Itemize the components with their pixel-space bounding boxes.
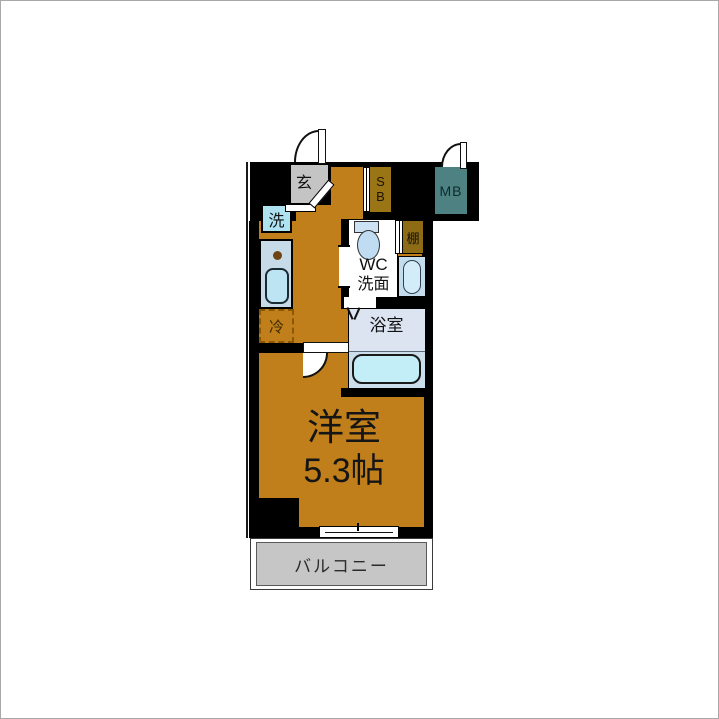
shoebox-label-s: S <box>376 175 385 190</box>
shoebox-label-b: B <box>376 190 385 205</box>
entrance-label: 玄 <box>296 169 312 193</box>
main-room-label: 洋室 5.3帖 <box>263 405 425 493</box>
exterior-face-line <box>246 162 248 538</box>
wall-hall-room <box>249 343 303 353</box>
room-door-leaf-icon <box>303 342 349 353</box>
main-room-size: 5.3帖 <box>303 451 384 492</box>
wall-right-mid <box>425 309 433 397</box>
washbasin-bowl <box>403 260 421 294</box>
bathtub <box>352 354 421 384</box>
meter-box-door-arc-icon <box>441 143 461 167</box>
shoebox: S B <box>370 167 391 212</box>
entrance-door-leaf-icon <box>318 129 326 164</box>
toilet-door-jamb-bottom <box>338 286 350 288</box>
toilet-room-label-senmen: 洗面 <box>345 273 402 291</box>
wall-left <box>249 221 259 538</box>
shelf-box: 棚 <box>402 220 424 254</box>
refrigerator-space: 冷 <box>259 309 294 343</box>
bathroom-folding-door-icon <box>346 307 360 321</box>
main-room-name: 洋室 <box>303 406 384 450</box>
toilet-door-jamb-top <box>338 245 350 247</box>
floor-plan: WC 洗面 棚 浴室 洗 冷 玄 S B MB <box>0 0 719 719</box>
meter-box: MB <box>435 167 467 214</box>
shoebox-sliding-door <box>363 167 370 212</box>
wall-right-upper <box>425 219 433 309</box>
wall-bottom-left-block <box>257 498 299 529</box>
entrance-door-arc-icon <box>294 130 319 162</box>
wall-right-lower <box>424 396 433 538</box>
balcony-panel: バルコニー <box>256 542 427 586</box>
balcony-window-tick <box>357 523 359 531</box>
kitchen-sink <box>265 268 289 304</box>
balcony-window <box>319 526 399 538</box>
wall-below-bath <box>341 388 433 397</box>
toilet-door-gap <box>339 247 350 287</box>
meter-box-door-leaf-icon <box>460 142 467 169</box>
stove-burner-icon <box>273 251 282 260</box>
balcony-label: バルコニー <box>294 552 389 577</box>
